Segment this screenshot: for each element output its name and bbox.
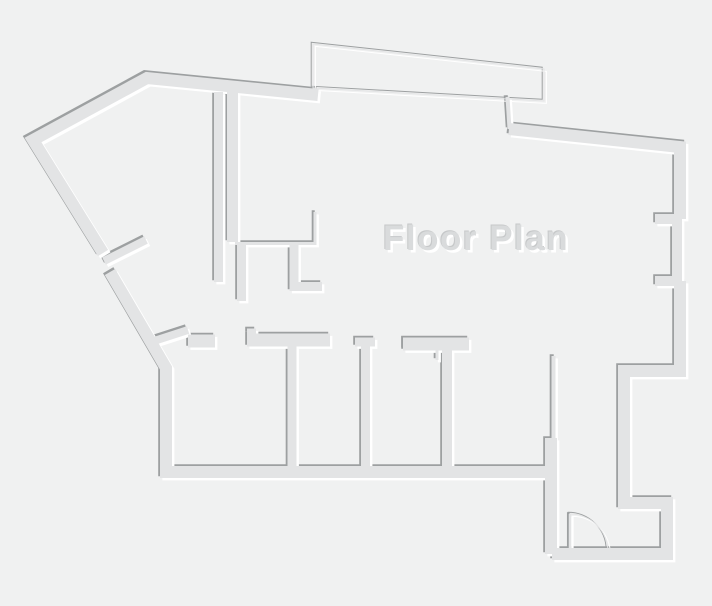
walls-main-layer [33, 44, 680, 554]
floor-plan-title: Floor Plan [383, 219, 569, 258]
floor-plan-page: Floor Plan Floor Plan Floor Plan [0, 0, 712, 606]
floor-plan-canvas: Floor Plan Floor Plan Floor Plan [0, 0, 712, 606]
